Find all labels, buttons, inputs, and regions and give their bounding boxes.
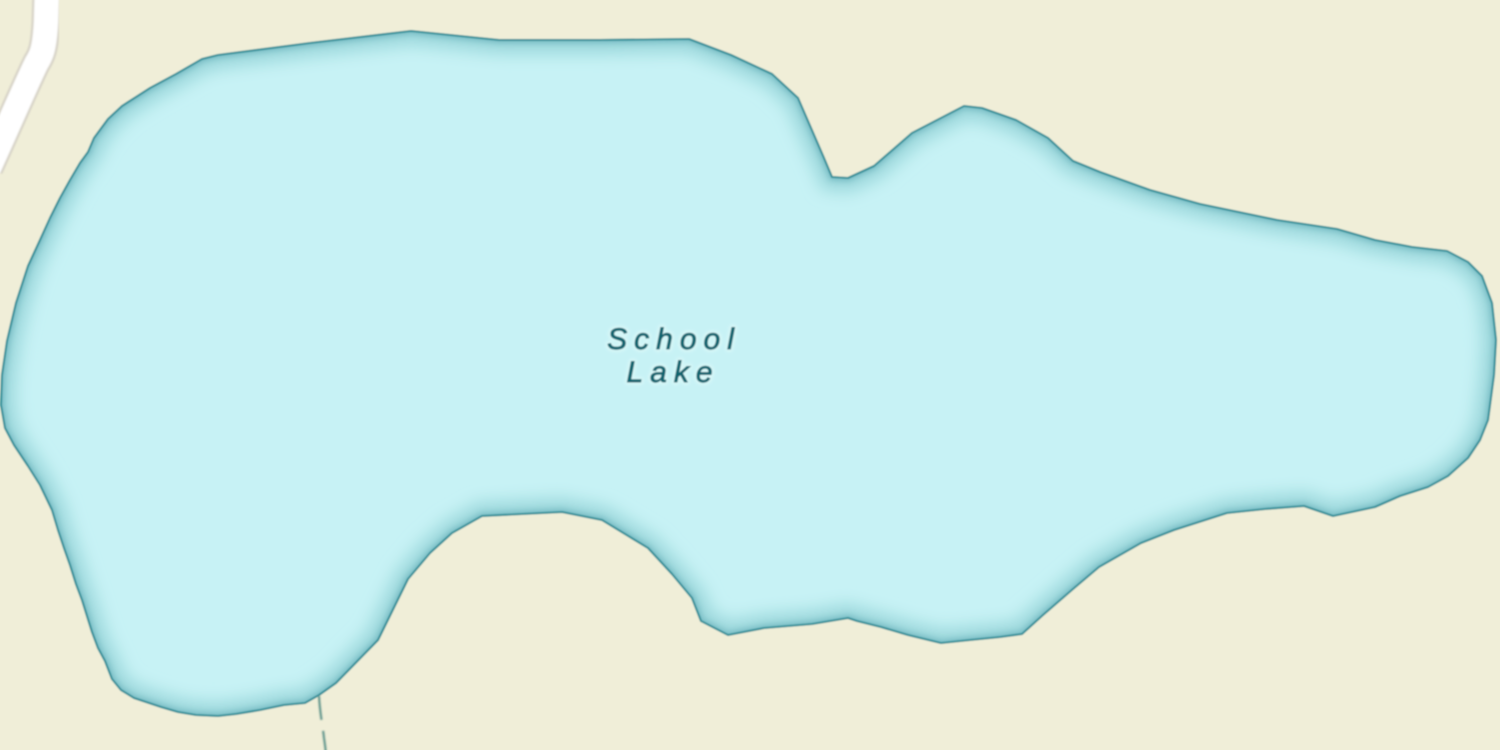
svg-text:Lake: Lake: [626, 356, 719, 389]
svg-text:School: School: [607, 323, 741, 356]
